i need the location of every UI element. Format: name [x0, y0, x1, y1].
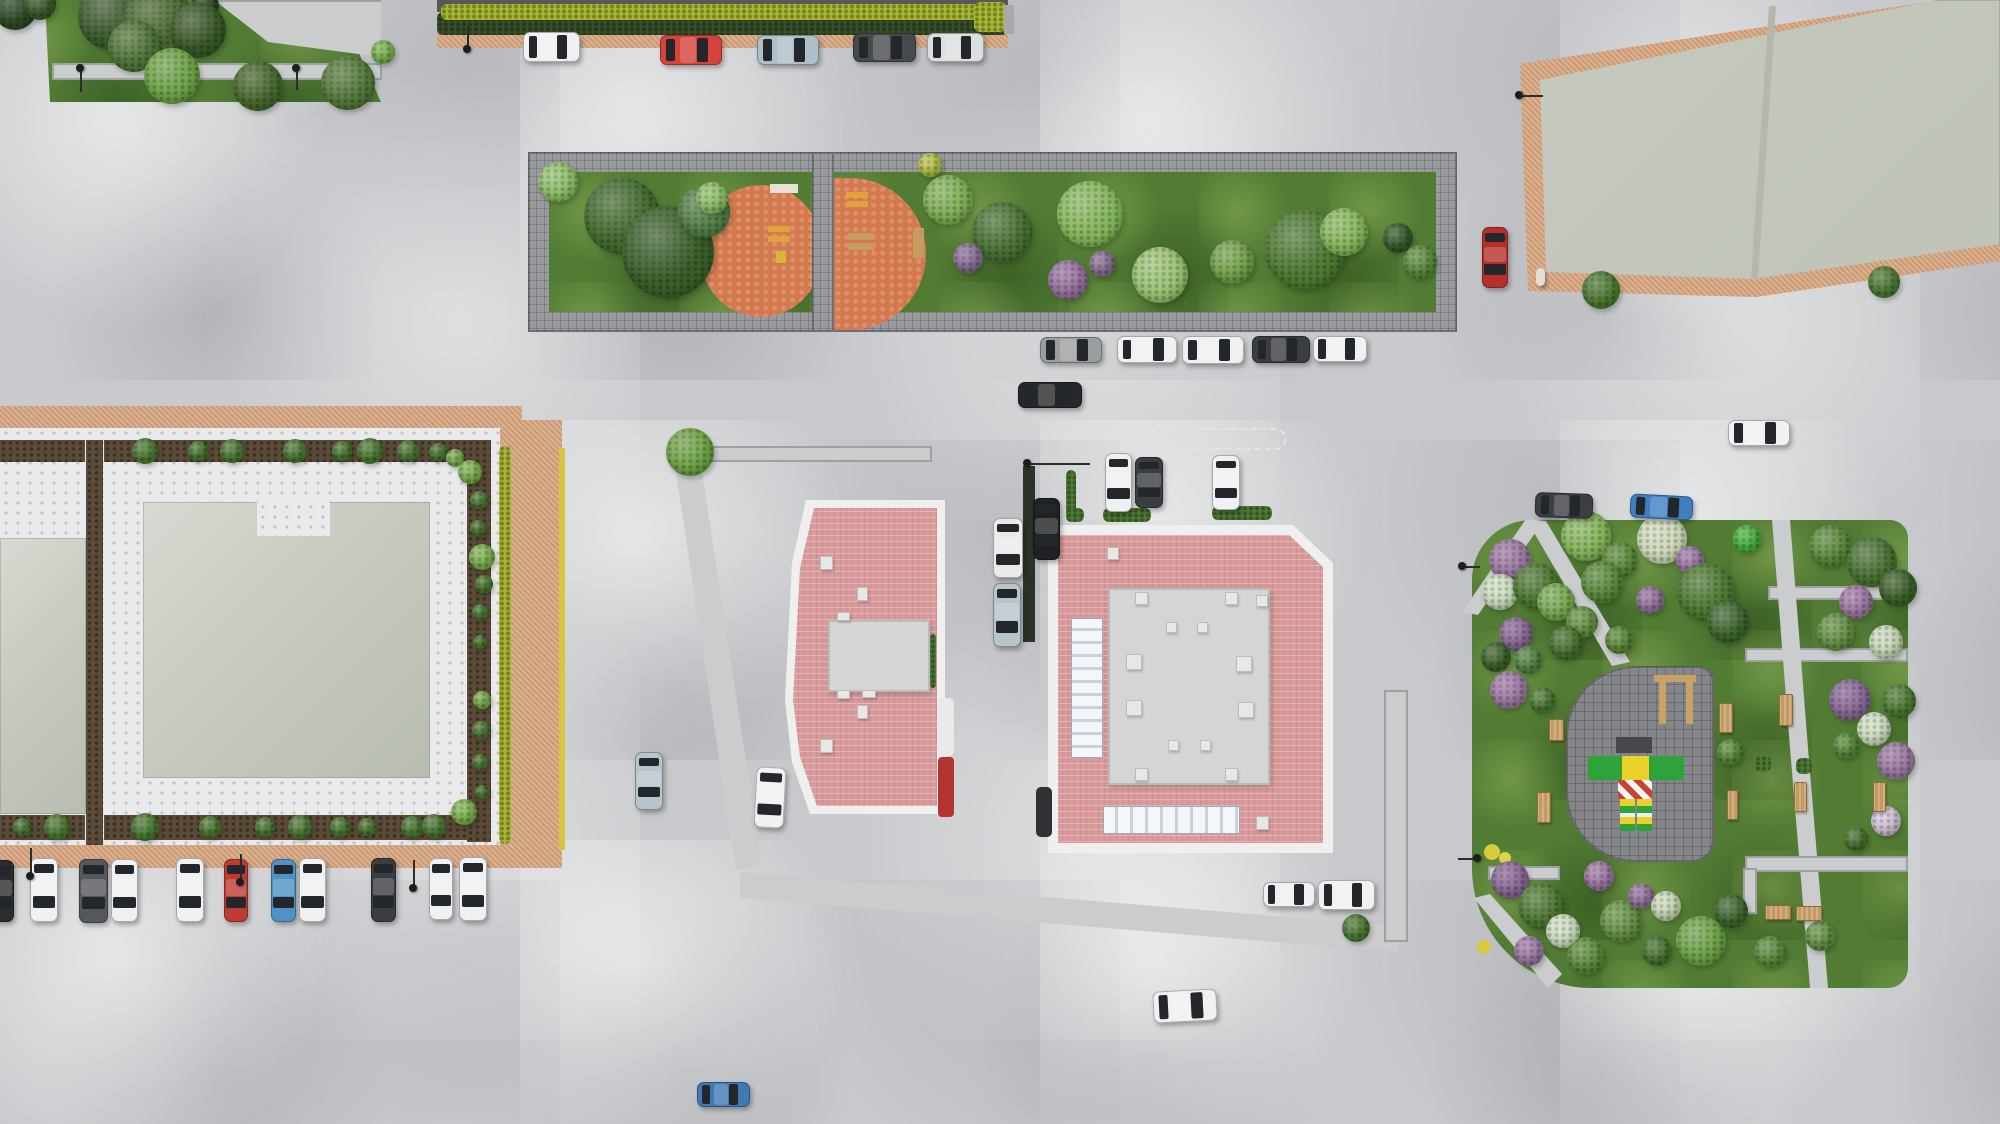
- tree: [1857, 712, 1891, 746]
- car: [993, 583, 1021, 647]
- car-roof: [1748, 422, 1764, 444]
- tree: [1868, 266, 1900, 298]
- tree: [1605, 626, 1633, 654]
- roof-notch: [257, 502, 330, 536]
- car-rear-glass: [1258, 340, 1266, 360]
- tree: [458, 460, 482, 484]
- car-windshield: [1153, 338, 1164, 360]
- car: [927, 33, 984, 62]
- car-roof: [0, 880, 12, 896]
- car-roof: [757, 786, 784, 803]
- tree: [1877, 742, 1915, 780]
- tree: [1717, 739, 1743, 765]
- car: [1482, 227, 1508, 288]
- tree: [188, 441, 208, 461]
- car-roof: [113, 879, 136, 895]
- tree: [1342, 914, 1370, 942]
- car: [1182, 336, 1244, 364]
- tree: [1809, 525, 1851, 567]
- car-roof: [873, 35, 889, 60]
- car-rear-glass: [763, 39, 772, 61]
- lamp-post: [76, 64, 84, 72]
- car-windshield: [373, 896, 394, 908]
- car-windshield: [638, 787, 661, 797]
- sidewalk: [676, 446, 932, 462]
- car-rear-glass: [1139, 462, 1160, 469]
- car: [1105, 453, 1132, 512]
- tree: [401, 816, 423, 838]
- car-windshield: [729, 1084, 739, 1105]
- roof-vent: [837, 612, 850, 621]
- tree: [472, 754, 488, 770]
- swing-leg: [1659, 682, 1666, 724]
- car-windshield: [1077, 339, 1088, 360]
- building-e-core: [1108, 588, 1270, 785]
- car: [753, 766, 786, 828]
- car-roof: [1137, 473, 1161, 486]
- roof-unit: [1197, 622, 1208, 633]
- car-rear-glass: [639, 758, 660, 766]
- car-rear-glass: [34, 864, 55, 873]
- car-windshield: [794, 38, 805, 63]
- car-rear-glass: [529, 36, 537, 58]
- tree: [469, 544, 495, 570]
- car-roof: [714, 1084, 728, 1106]
- building-c-penthouse: [828, 620, 930, 692]
- car: [299, 858, 326, 922]
- car-roof: [1173, 992, 1191, 1020]
- tree: [1549, 626, 1583, 660]
- car-windshield: [1287, 338, 1297, 360]
- lamp-post: [236, 878, 244, 886]
- car-rear-glass: [666, 39, 675, 61]
- car-windshield: [1294, 884, 1303, 905]
- complex-w-roof-main: [143, 502, 430, 778]
- solar-array: [1103, 806, 1240, 834]
- car-roof: [1035, 518, 1058, 534]
- car-roof: [1271, 338, 1286, 361]
- tree: [1642, 936, 1672, 966]
- tree: [1529, 687, 1555, 713]
- hedge-line: [499, 446, 511, 844]
- car: [1135, 457, 1163, 508]
- tree: [429, 443, 447, 461]
- car: [993, 518, 1023, 578]
- tree: [1581, 561, 1623, 603]
- car-windshield: [557, 35, 567, 60]
- car-roof: [461, 877, 485, 894]
- tree: [1057, 181, 1123, 247]
- car: [757, 35, 819, 65]
- car-roof: [1336, 882, 1351, 908]
- car-rear-glass: [274, 865, 293, 874]
- roof-unit: [1168, 740, 1179, 751]
- parked-car-partial: [1036, 787, 1052, 837]
- car: [1263, 882, 1315, 907]
- lamp-post: [26, 872, 34, 880]
- roof-unit: [1135, 768, 1148, 781]
- car: [176, 858, 204, 922]
- car-windshield: [1107, 488, 1129, 499]
- tree: [1567, 937, 1605, 975]
- tree: [422, 814, 446, 838]
- car-windshield: [179, 896, 202, 908]
- play-mat: [1616, 737, 1652, 753]
- tree: [1482, 574, 1518, 610]
- car-windshield: [33, 896, 56, 908]
- car-rear-glass: [997, 589, 1018, 598]
- car-roof: [1136, 338, 1152, 361]
- bench-board: [913, 228, 924, 258]
- car-windshield: [462, 895, 485, 907]
- car-windshield: [996, 554, 1021, 565]
- car-rear-glass: [997, 524, 1019, 532]
- road-marking: [1150, 428, 1286, 450]
- play-tower: [1620, 799, 1635, 831]
- car-rear-glass: [374, 864, 393, 873]
- tree: [1514, 936, 1544, 966]
- hedge-box: [1755, 756, 1771, 772]
- car-windshield: [301, 896, 323, 908]
- tree: [132, 438, 158, 464]
- tree: [472, 721, 490, 739]
- car: [111, 859, 138, 922]
- tree: [470, 491, 488, 509]
- tree: [1882, 684, 1916, 718]
- car-windshield: [113, 897, 135, 908]
- tree: [1048, 260, 1088, 300]
- roof-vent: [857, 705, 868, 719]
- play-structure-center: [1622, 756, 1649, 780]
- picnic-table: [770, 184, 798, 193]
- car-roof: [777, 37, 793, 63]
- tree: [473, 691, 491, 709]
- car-roof: [1214, 473, 1238, 487]
- car-roof: [1060, 339, 1076, 361]
- tree: [475, 575, 493, 593]
- hedge-curb: [1004, 5, 1014, 34]
- roof-unit: [1126, 700, 1142, 716]
- roof-vent: [1256, 816, 1269, 830]
- seesaw: [846, 192, 868, 198]
- tree: [371, 40, 395, 64]
- car-rear-glass: [1188, 340, 1197, 361]
- bench: [1796, 906, 1822, 921]
- car: [429, 858, 453, 920]
- car-rear-glass: [859, 37, 868, 58]
- car-windshield: [1667, 497, 1679, 517]
- curb-line: [559, 448, 565, 850]
- car: [1313, 336, 1367, 362]
- car-roof: [680, 37, 696, 63]
- car-rear-glass: [1037, 504, 1057, 513]
- roof-unit: [1256, 595, 1268, 607]
- car-windshield: [996, 621, 1019, 633]
- car-roof: [995, 537, 1021, 553]
- car-rear-glass: [1540, 495, 1549, 514]
- car: [459, 857, 487, 921]
- car-roof: [995, 603, 1019, 620]
- tree: [1089, 251, 1115, 277]
- car-windshield: [1215, 488, 1238, 498]
- roof-vent: [820, 739, 833, 753]
- car: [79, 859, 108, 923]
- tree: [1733, 525, 1761, 553]
- bench: [1719, 703, 1733, 733]
- picnic-table: [848, 233, 874, 240]
- car-roof: [273, 879, 295, 895]
- car-windshield: [697, 38, 708, 63]
- tree: [953, 243, 983, 273]
- complex-w-roof-small: [0, 538, 86, 814]
- tree: [357, 438, 383, 464]
- tree: [1636, 586, 1664, 614]
- lamp-post: [1473, 854, 1481, 862]
- tree: [255, 817, 275, 837]
- tree: [220, 439, 244, 463]
- lamp-post: [1458, 562, 1466, 570]
- car: [635, 752, 663, 810]
- roof-unit: [1225, 592, 1238, 605]
- car: [853, 33, 916, 62]
- car-rear-glass: [1318, 339, 1326, 358]
- bench: [1537, 792, 1551, 823]
- car-rear-glass: [115, 865, 135, 874]
- car-roof: [1484, 247, 1506, 263]
- tree: [321, 56, 375, 110]
- flower-bed: [1484, 844, 1500, 860]
- courtyard-path: [1745, 856, 1908, 872]
- roof-vent: [820, 556, 833, 570]
- car-windshield: [1765, 422, 1776, 443]
- tree: [1651, 891, 1681, 921]
- tree: [1844, 827, 1868, 851]
- seesaw: [768, 236, 790, 242]
- tree: [397, 440, 419, 462]
- aerial-site-plan-render: [0, 0, 2000, 1124]
- car-windshield: [1345, 338, 1355, 359]
- sidewalk-east: [1384, 690, 1408, 942]
- roof-vent: [862, 690, 876, 698]
- tree: [1481, 642, 1511, 672]
- tree: [1707, 601, 1749, 643]
- tree: [470, 520, 486, 536]
- car-rear-glass: [1636, 497, 1646, 515]
- tree: [923, 175, 973, 225]
- tree: [283, 439, 307, 463]
- car-rear-glass: [227, 865, 245, 874]
- car: [1252, 336, 1310, 363]
- play-structure-checker: [1618, 780, 1652, 799]
- planter-strip: [86, 440, 103, 845]
- lamp-arm: [1027, 463, 1090, 465]
- car-windshield: [273, 897, 294, 908]
- tree: [1490, 671, 1528, 709]
- car: [1629, 493, 1693, 520]
- car-rear-glass: [1024, 385, 1033, 404]
- hedge-row-yellow: [441, 4, 1004, 20]
- tree: [1879, 569, 1917, 607]
- tree: [332, 441, 352, 461]
- car-windshield: [1219, 339, 1230, 362]
- tree: [1754, 936, 1786, 968]
- car: [371, 858, 396, 922]
- roof-unit: [1225, 768, 1238, 781]
- car-roof: [32, 878, 56, 895]
- car-windshield: [1352, 883, 1362, 908]
- swing-leg: [1686, 682, 1693, 724]
- car-windshield: [961, 36, 971, 60]
- car-roof: [1553, 494, 1569, 516]
- tree: [1582, 271, 1620, 309]
- lamp-post: [409, 884, 417, 892]
- car-rear-glass: [303, 864, 323, 873]
- tree: [538, 162, 578, 202]
- linear-park-path: [812, 152, 834, 332]
- roof-unit: [1135, 592, 1148, 605]
- lamp-post: [1023, 459, 1031, 467]
- car-windshield: [1138, 488, 1161, 497]
- car: [271, 859, 296, 922]
- car-rear-glass: [83, 865, 104, 874]
- car: [1040, 337, 1102, 363]
- car: [1535, 492, 1594, 519]
- car-roof: [1280, 884, 1294, 906]
- tree: [1714, 894, 1748, 928]
- swing-beam: [1654, 675, 1696, 682]
- car-windshield: [1035, 535, 1057, 546]
- car-windshield: [1056, 384, 1068, 405]
- car-rear-glass: [463, 863, 484, 872]
- car-roof: [541, 34, 556, 60]
- tree: [1210, 240, 1254, 284]
- car: [1033, 498, 1060, 560]
- car: [1018, 382, 1082, 408]
- lamp-post: [463, 45, 471, 53]
- car-windshield: [1569, 495, 1580, 516]
- car-rear-glass: [1268, 885, 1275, 904]
- car-windshield: [0, 897, 12, 908]
- car: [1117, 336, 1177, 363]
- tree: [451, 799, 477, 825]
- tree: [1403, 245, 1437, 279]
- car-roof: [1650, 496, 1667, 517]
- car-windshield: [82, 897, 106, 909]
- car-rear-glass: [1324, 884, 1332, 906]
- car-rear-glass: [702, 1085, 709, 1104]
- bench: [1727, 790, 1738, 820]
- car-rear-glass: [1046, 340, 1055, 359]
- car-windshield: [1191, 992, 1204, 1019]
- bench: [1765, 905, 1791, 920]
- car-roof: [301, 878, 324, 895]
- car-windshield: [226, 897, 246, 908]
- car-roof: [81, 879, 106, 896]
- car: [1318, 880, 1375, 910]
- picnic-table: [848, 243, 874, 250]
- roof-vent: [837, 690, 850, 699]
- car-rear-glass: [1734, 423, 1743, 442]
- hedge-seg: [1066, 508, 1084, 522]
- car-rear-glass: [1123, 340, 1131, 360]
- car-roof: [178, 878, 202, 895]
- car: [1728, 420, 1790, 446]
- roof-unit: [1200, 740, 1211, 751]
- parked-van: [938, 698, 954, 756]
- car-roof: [1202, 338, 1218, 362]
- car-rear-glass: [432, 864, 450, 873]
- tree: [1584, 861, 1614, 891]
- bench: [1779, 694, 1793, 726]
- roof-unit: [1238, 702, 1254, 718]
- tree: [199, 816, 221, 838]
- parked-truck: [938, 757, 954, 817]
- bench: [1873, 782, 1886, 812]
- lamp-post: [1515, 91, 1523, 99]
- car: [1212, 455, 1240, 510]
- car-rear-glass: [0, 866, 11, 875]
- play-tower: [1637, 799, 1652, 831]
- car-roof: [1038, 384, 1055, 406]
- bench: [1794, 782, 1807, 812]
- tree: [13, 818, 31, 836]
- car: [1152, 988, 1218, 1023]
- tree: [1132, 247, 1188, 303]
- car-rear-glass: [933, 37, 941, 58]
- tree: [666, 428, 714, 476]
- spring-rider: [776, 251, 786, 263]
- car-roof: [373, 878, 395, 895]
- car-rear-glass: [180, 864, 201, 873]
- roof-unit: [1236, 656, 1252, 672]
- car-windshield: [431, 895, 451, 906]
- car: [224, 859, 248, 922]
- tree: [330, 817, 350, 837]
- car: [697, 1082, 750, 1107]
- tree: [1514, 646, 1542, 674]
- car-windshield: [891, 36, 902, 60]
- tree: [1320, 208, 1368, 256]
- tree: [918, 153, 942, 177]
- roof-vent: [1107, 547, 1119, 560]
- person: [1536, 268, 1545, 286]
- planter-strip: [0, 440, 85, 462]
- car-rear-glass: [1109, 459, 1129, 467]
- car-rear-glass: [1159, 995, 1169, 1019]
- roof-vent: [857, 587, 868, 601]
- car: [0, 860, 14, 922]
- car-roof: [1330, 338, 1344, 360]
- tree: [1817, 613, 1855, 651]
- hedge-line: [930, 634, 936, 688]
- tree: [475, 785, 489, 799]
- car-roof: [1107, 472, 1130, 487]
- tree: [358, 818, 376, 836]
- tree: [131, 813, 159, 841]
- roof-unit: [1166, 622, 1177, 633]
- car-roof: [637, 771, 661, 786]
- tree: [472, 604, 488, 620]
- car-roof: [431, 878, 452, 894]
- tree: [233, 61, 283, 111]
- flower-bed: [1477, 940, 1491, 954]
- hedge-box: [1796, 758, 1812, 774]
- tree: [288, 815, 312, 839]
- car-windshield: [1484, 264, 1505, 275]
- hedge-end: [974, 2, 1006, 32]
- solar-array: [1071, 618, 1103, 758]
- car-roof: [945, 35, 960, 60]
